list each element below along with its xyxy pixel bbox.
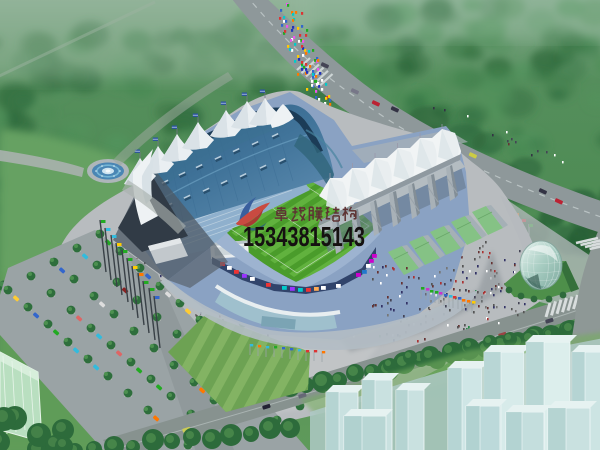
svg-text:15343815143: 15343815143: [243, 221, 365, 252]
